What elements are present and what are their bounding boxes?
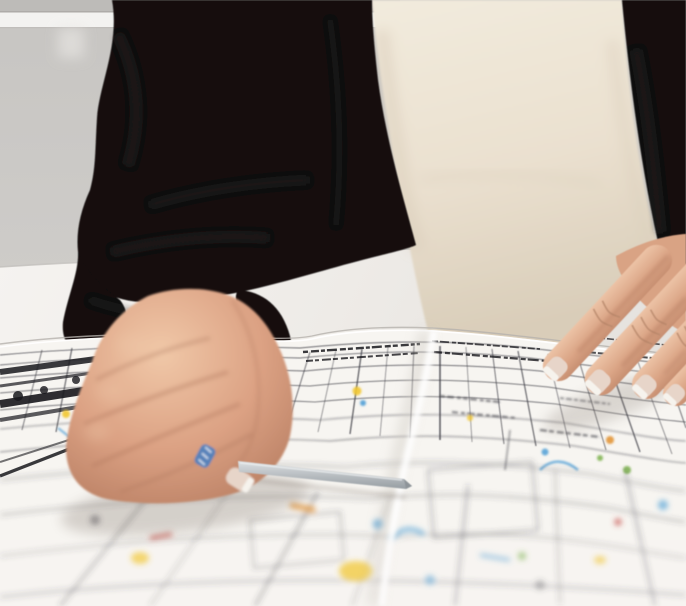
foreground-blur-wash xyxy=(0,540,686,606)
photo-stage xyxy=(0,0,686,606)
photo-architect-plans xyxy=(0,0,686,606)
wall-reflection xyxy=(58,28,84,58)
